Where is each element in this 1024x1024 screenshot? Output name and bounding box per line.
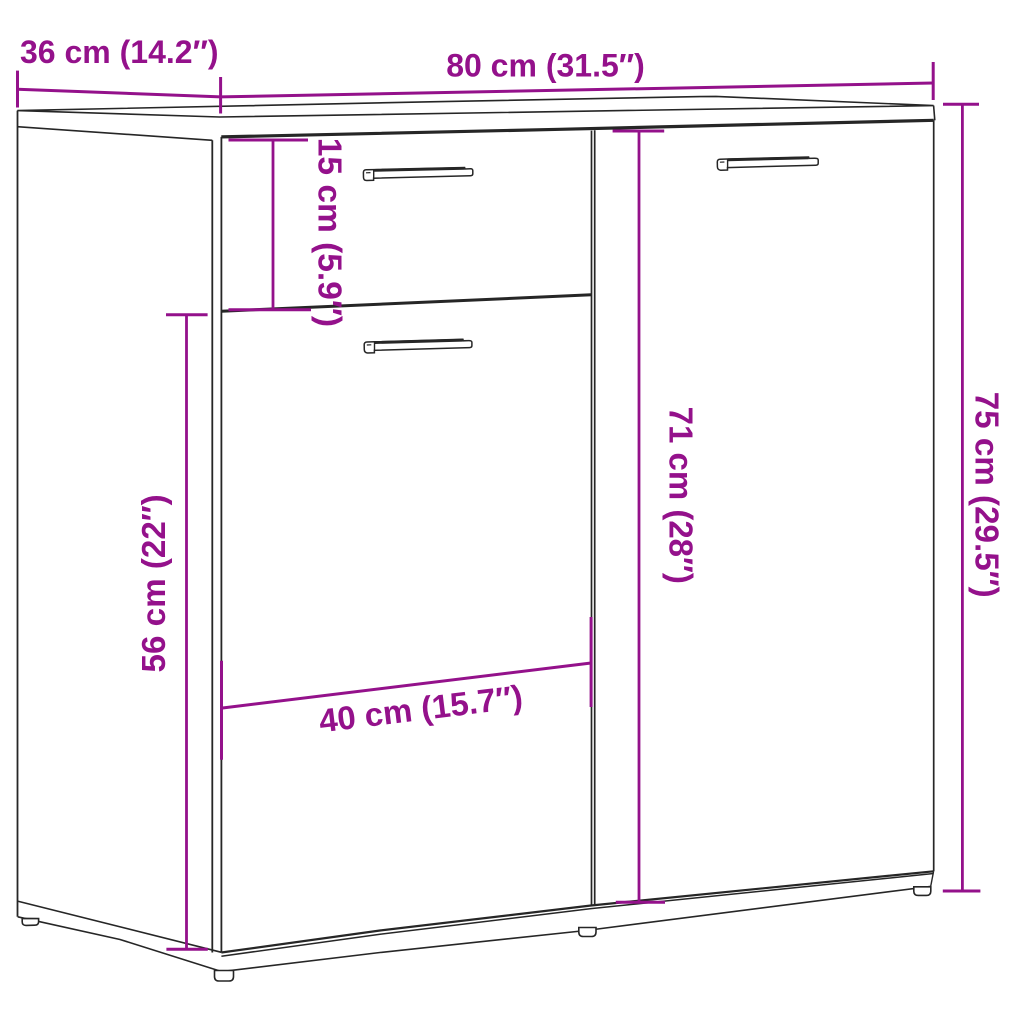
svg-text:80 cm (31.5″): 80 cm (31.5″) — [446, 47, 645, 83]
svg-text:15 cm (5.9″): 15 cm (5.9″) — [310, 138, 347, 327]
svg-text:71 cm (28″): 71 cm (28″) — [662, 407, 699, 584]
svg-text:56 cm (22″): 56 cm (22″) — [136, 494, 173, 672]
svg-text:36 cm (14.2″): 36 cm (14.2″) — [20, 34, 219, 70]
svg-text:75 cm (29.5″): 75 cm (29.5″) — [967, 392, 1004, 598]
